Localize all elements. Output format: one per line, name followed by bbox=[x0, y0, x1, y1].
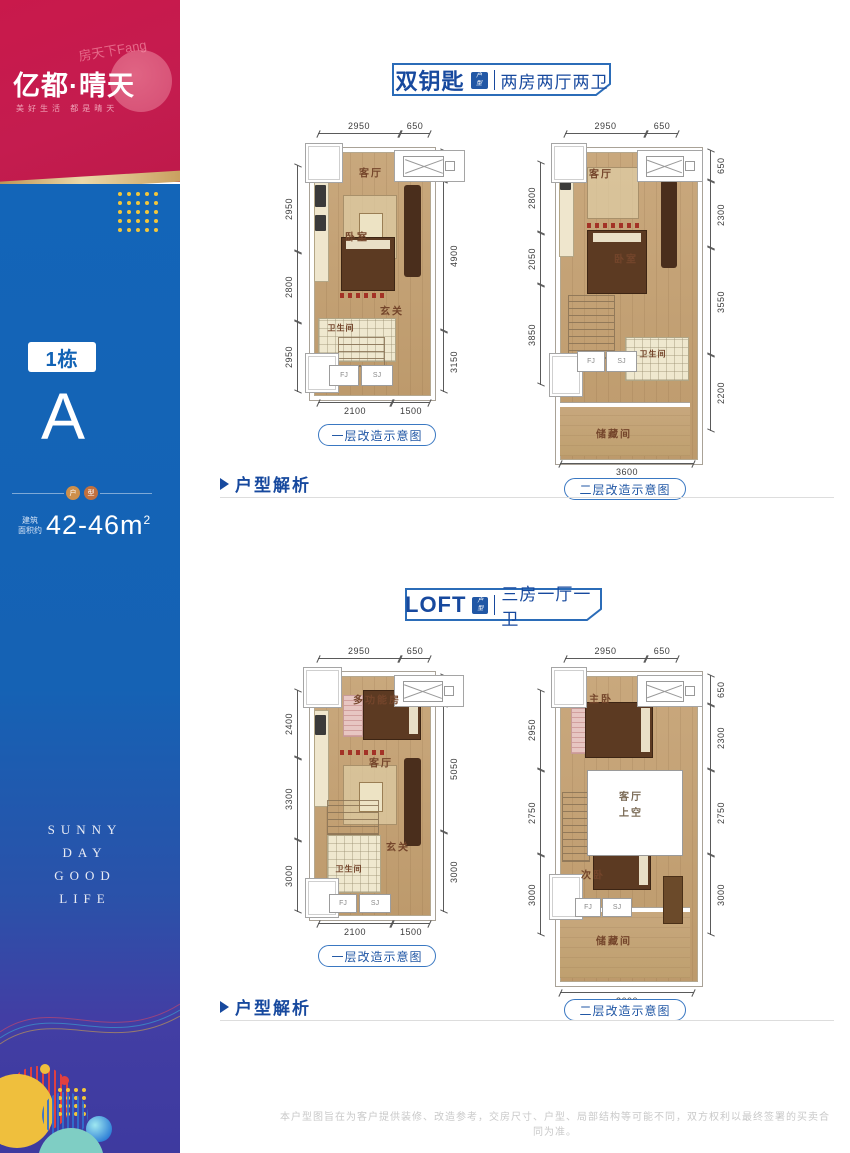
dim-left-1: 2950 bbox=[297, 165, 298, 252]
dim-left-2: 3300 bbox=[297, 758, 298, 840]
stairs bbox=[562, 792, 590, 862]
balcony-box bbox=[303, 667, 342, 708]
huxing-badge-icon: 户型 bbox=[472, 597, 488, 614]
sidebar: 房天下Fang 亿都·晴天 美好生活 都是晴天 1栋 A 户 型 建筑 面积约 bbox=[0, 0, 180, 1153]
dim-top-1: 2950 bbox=[565, 658, 646, 659]
unit-letter: A bbox=[0, 378, 126, 454]
dim-top-2: 650 bbox=[400, 658, 430, 659]
huxing-circle-icon: 户 bbox=[66, 486, 80, 500]
dim-right-2: 2300 bbox=[710, 181, 711, 248]
flyer-canvas: 房天下Fang 亿都·晴天 美好生活 都是晴天 1栋 A 户 型 建筑 面积约 bbox=[0, 0, 850, 1153]
sofa bbox=[661, 180, 677, 268]
analysis-rule bbox=[220, 497, 834, 498]
dim-top-1: 2950 bbox=[318, 658, 400, 659]
sj-box: SJ bbox=[361, 365, 393, 386]
dim-left-3: 3000 bbox=[297, 840, 298, 912]
room-label-bedroom: 卧室 bbox=[614, 251, 638, 266]
room-label-entry: 玄关 bbox=[386, 839, 410, 854]
area-prefix: 建筑 面积约 bbox=[18, 516, 42, 536]
balcony-box bbox=[551, 667, 587, 708]
floorplan-s1-level2: FJ SJ 客厅 卧室 卫生间 储藏间 2950 650 2800 2050 3… bbox=[525, 125, 725, 510]
dim-left-1: 2950 bbox=[540, 690, 541, 770]
room-label-living: 客厅 bbox=[369, 755, 393, 770]
dim-left-1: 2800 bbox=[540, 162, 541, 233]
dim-bottom-1: 3600 bbox=[560, 992, 694, 993]
balcony-box bbox=[551, 143, 587, 183]
sink bbox=[315, 215, 326, 231]
small-yellow-dot bbox=[40, 1064, 50, 1074]
floorplan-s2-level1: FJ SJ 多功能房 客厅 玄关 卫生间 2950 650 2400 3300 … bbox=[283, 650, 473, 950]
plan-caption: 一层改造示意图 bbox=[318, 424, 436, 446]
decor-strip bbox=[587, 223, 642, 228]
separator-line bbox=[494, 70, 495, 90]
dim-top-2: 650 bbox=[646, 133, 678, 134]
area-figure: 建筑 面积约 42-46m2 bbox=[18, 510, 151, 541]
room-label-multi: 多功能房 bbox=[353, 692, 401, 707]
section-title: LOFT bbox=[405, 592, 466, 618]
analysis-rule bbox=[220, 1020, 834, 1021]
room-label-bath: 卫生间 bbox=[336, 864, 363, 875]
dim-right-4: 2200 bbox=[710, 355, 711, 431]
ac-unit-box bbox=[637, 150, 703, 182]
decor-strip bbox=[340, 293, 388, 298]
dim-left-3: 2950 bbox=[297, 322, 298, 392]
section1-header: 双钥匙 户型 两房两厅两卫 bbox=[392, 63, 612, 97]
stairs bbox=[327, 800, 379, 835]
dim-right-1: 650 bbox=[710, 675, 711, 705]
ac-unit-box bbox=[394, 675, 464, 707]
section-subtitle: 两房两厅两卫 bbox=[501, 68, 609, 93]
sj-box: SJ bbox=[602, 898, 632, 917]
floorplan-s1-level1: FJ SJ 客厅 卧室 玄关 卫生间 2950 650 2950 2800 29… bbox=[283, 125, 473, 425]
room-label-bath: 卫生间 bbox=[328, 323, 355, 334]
dim-top-1: 2950 bbox=[318, 133, 400, 134]
dim-bottom-1: 3600 bbox=[560, 463, 694, 464]
bed bbox=[341, 237, 395, 291]
dim-right-4: 3000 bbox=[710, 855, 711, 935]
fan-icon bbox=[403, 681, 443, 703]
room-label-living: 客厅 bbox=[589, 166, 613, 181]
ac-unit-box bbox=[637, 675, 703, 707]
fj-box: FJ bbox=[577, 351, 605, 372]
pink-rug bbox=[571, 708, 586, 754]
dim-left-2: 2050 bbox=[540, 233, 541, 285]
triangle-bullet-icon bbox=[220, 478, 229, 490]
sj-box: SJ bbox=[359, 894, 391, 913]
room-label-second: 次卧 bbox=[581, 867, 605, 882]
room-label-storage: 储藏间 bbox=[596, 933, 632, 948]
room-label-master: 主卧 bbox=[589, 691, 613, 706]
dim-left-1: 2400 bbox=[297, 690, 298, 758]
triangle-bullet-icon bbox=[220, 1001, 229, 1013]
sidebar-blue-panel: 1栋 A 户 型 建筑 面积约 42-46m2 SUNNY DAY GOOD L… bbox=[0, 184, 180, 1153]
room-label-living: 客厅 bbox=[359, 165, 383, 180]
dim-top-2: 650 bbox=[646, 658, 678, 659]
dim-bottom-1: 2100 bbox=[318, 923, 392, 924]
building-badge: 1栋 bbox=[28, 342, 96, 372]
dim-right-2: 2300 bbox=[710, 705, 711, 770]
analysis-heading: 户型解析 bbox=[220, 471, 311, 496]
fan-icon bbox=[403, 156, 444, 178]
sofa bbox=[404, 758, 421, 846]
separator-line bbox=[494, 595, 495, 615]
floorplan-s2-level2: FJ SJ 主卧 客厅 上空 次卧 储藏间 2950 650 2950 2750… bbox=[525, 650, 725, 1020]
room-label-void: 客厅 上空 bbox=[619, 790, 643, 822]
dim-right-2: 4900 bbox=[443, 181, 444, 331]
huxing-divider: 户 型 bbox=[12, 486, 152, 500]
room-label-bath: 卫生间 bbox=[640, 349, 667, 360]
fj-box: FJ bbox=[329, 894, 357, 913]
fan-icon bbox=[646, 156, 684, 178]
dim-left-2: 2750 bbox=[540, 770, 541, 855]
stove bbox=[315, 185, 326, 207]
balcony-box bbox=[305, 143, 343, 183]
small-red-dot bbox=[60, 1076, 69, 1085]
sj-box: SJ bbox=[606, 351, 637, 372]
section-title: 双钥匙 bbox=[395, 64, 464, 96]
dim-right-3: 3550 bbox=[710, 248, 711, 355]
dim-top-1: 2950 bbox=[565, 133, 646, 134]
wardrobe bbox=[663, 876, 683, 924]
dim-bottom-1: 2100 bbox=[318, 402, 392, 403]
ac-unit-box bbox=[394, 150, 465, 182]
dim-right-2: 5050 bbox=[443, 705, 444, 832]
plan-caption: 二层改造示意图 bbox=[564, 999, 686, 1021]
dim-bottom-2: 1500 bbox=[392, 923, 430, 924]
slogan: SUNNY DAY GOOD LIFE bbox=[0, 818, 170, 910]
disclaimer-text: 本户型图旨在为客户提供装修、改造参考，交房尺寸、户型、局部结构等可能不同，双方权… bbox=[280, 1108, 830, 1138]
wave-lines bbox=[0, 990, 180, 1050]
dim-left-3: 3000 bbox=[540, 855, 541, 935]
master-bed bbox=[585, 702, 653, 758]
room-label-entry: 玄关 bbox=[380, 303, 404, 318]
stove bbox=[315, 715, 326, 735]
room-label-storage: 储藏间 bbox=[596, 426, 632, 441]
dim-right-1: 650 bbox=[710, 150, 711, 181]
dim-left-2: 2800 bbox=[297, 252, 298, 322]
area-value: 42-46m2 bbox=[46, 510, 151, 541]
brand-panel: 房天下Fang 亿都·晴天 美好生活 都是晴天 bbox=[0, 0, 180, 182]
huxing-badge-icon: 户型 bbox=[471, 72, 488, 89]
fj-box: FJ bbox=[575, 898, 601, 917]
brand-logo: 亿都·晴天 bbox=[13, 64, 135, 103]
dim-bottom-2: 1500 bbox=[392, 402, 430, 403]
section2-header: LOFT 户型 三房一厅一卫 bbox=[405, 588, 603, 622]
analysis-heading: 户型解析 bbox=[220, 994, 311, 1019]
section-subtitle: 三房一厅一卫 bbox=[501, 580, 603, 630]
fj-box: FJ bbox=[329, 365, 359, 386]
dim-left-3: 3850 bbox=[540, 285, 541, 385]
stairs bbox=[338, 337, 385, 367]
room-label-bedroom: 卧室 bbox=[345, 229, 369, 244]
sofa bbox=[404, 185, 421, 277]
dim-right-3: 3150 bbox=[443, 331, 444, 392]
huxing-circle-icon: 型 bbox=[84, 486, 98, 500]
stairs bbox=[568, 295, 615, 359]
dim-right-3: 3000 bbox=[443, 832, 444, 912]
brand-tagline: 美好生活 都是晴天 bbox=[16, 103, 118, 114]
yellow-dot-grid bbox=[118, 192, 158, 232]
plan-caption: 一层改造示意图 bbox=[318, 945, 436, 967]
dim-top-2: 650 bbox=[400, 133, 430, 134]
fan-icon bbox=[646, 681, 684, 703]
dim-right-3: 2750 bbox=[710, 770, 711, 855]
